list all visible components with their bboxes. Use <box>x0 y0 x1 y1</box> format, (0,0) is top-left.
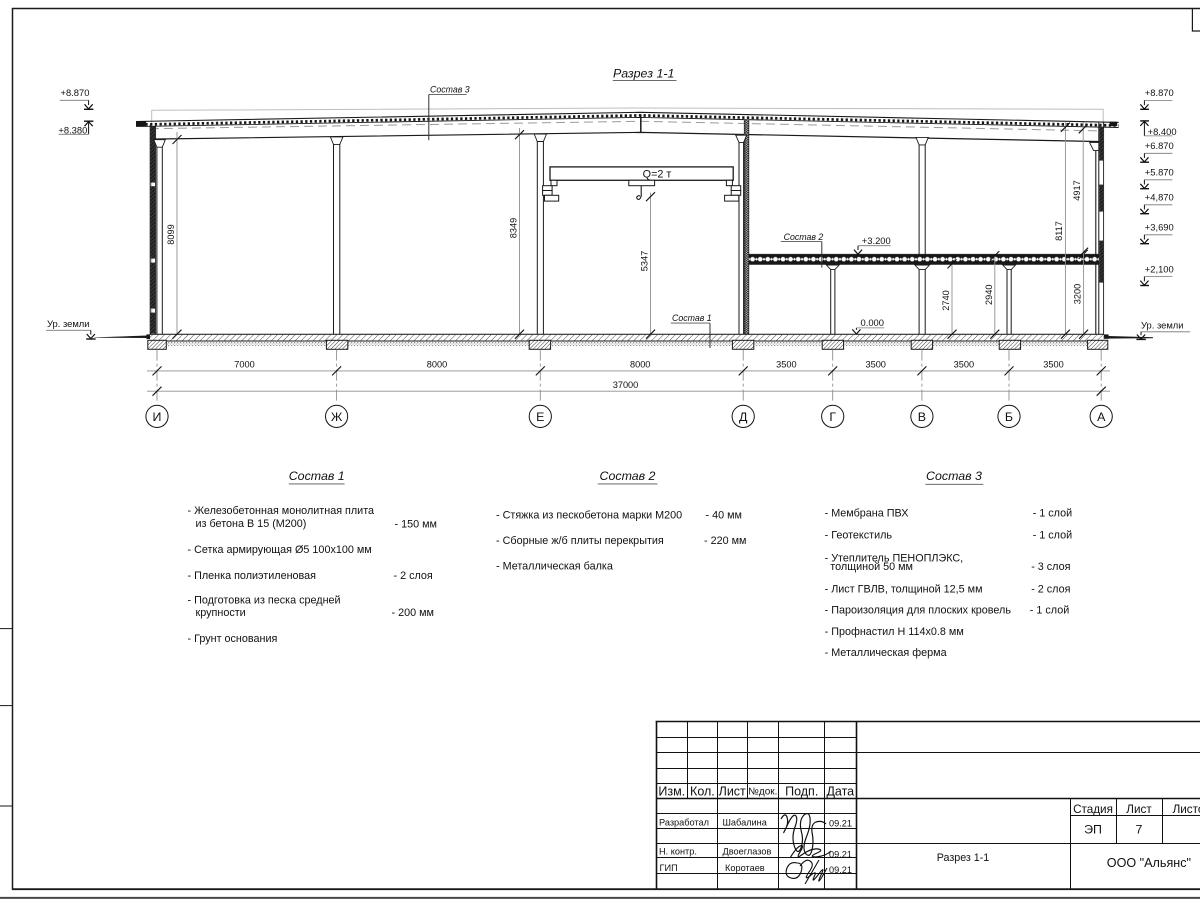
svg-text:5347: 5347 <box>640 251 650 271</box>
svg-text:Состав 3: Состав 3 <box>926 469 982 483</box>
svg-text:- 220 мм: - 220 мм <box>704 535 746 547</box>
svg-text:Б: Б <box>1005 410 1013 424</box>
svg-text:Н. контр.: Н. контр. <box>659 847 697 857</box>
svg-text:- 2 слоя: - 2 слоя <box>394 570 433 582</box>
svg-text:- Мембрана ПВХ: - Мембрана ПВХ <box>825 508 909 520</box>
svg-text:+8.870: +8.870 <box>61 87 90 98</box>
svg-text:+8.400: +8.400 <box>1148 126 1177 137</box>
svg-text:Кол.: Кол. <box>690 784 715 798</box>
svg-text:2940: 2940 <box>984 284 994 304</box>
svg-text:Дата: Дата <box>826 784 854 798</box>
svg-text:Состав 1: Состав 1 <box>672 313 712 323</box>
svg-text:Состав 2: Состав 2 <box>784 232 824 242</box>
svg-text:Двоеглазов: Двоеглазов <box>723 847 772 857</box>
svg-text:8117: 8117 <box>1054 221 1064 241</box>
svg-text:Разрез 1-1: Разрез 1-1 <box>937 852 990 864</box>
svg-text:Листов: Листов <box>1173 803 1200 816</box>
svg-text:+8.870: +8.870 <box>1145 87 1174 98</box>
svg-text:3500: 3500 <box>865 359 885 369</box>
svg-text:8349: 8349 <box>509 218 519 238</box>
svg-text:И: И <box>153 410 162 424</box>
svg-text:Е: Е <box>536 410 544 424</box>
svg-text:Коротаев: Коротаев <box>725 863 765 873</box>
svg-text:- 150 мм: - 150 мм <box>395 519 437 531</box>
svg-text:Стадия: Стадия <box>1073 803 1113 816</box>
svg-text:Разработал: Разработал <box>659 818 709 828</box>
svg-text:Состав 3: Состав 3 <box>430 85 470 95</box>
svg-text:Ур. земли: Ур. земли <box>47 318 90 329</box>
svg-text:Q=2 т: Q=2 т <box>643 169 672 181</box>
svg-text:3500: 3500 <box>776 359 796 369</box>
svg-text:- 3 слоя: - 3 слоя <box>1031 561 1070 573</box>
svg-text:2740: 2740 <box>941 290 951 310</box>
svg-text:Лист: Лист <box>1126 803 1152 816</box>
svg-text:3500: 3500 <box>954 359 974 369</box>
svg-text:В: В <box>918 410 926 424</box>
svg-text:+3,690: +3,690 <box>1145 222 1174 233</box>
svg-text:ГИП: ГИП <box>660 863 678 873</box>
svg-text:3200: 3200 <box>1073 284 1083 304</box>
svg-text:8099: 8099 <box>166 224 176 244</box>
svg-text:- Грунт основания: - Грунт основания <box>188 633 278 645</box>
svg-text:- Лист ГВЛВ, толщиной 12,5 мм: - Лист ГВЛВ, толщиной 12,5 мм <box>825 583 983 595</box>
svg-text:- Железобетонная монолитная п: - Железобетонная монолитная плита <box>188 505 375 517</box>
svg-text:+4,870: +4,870 <box>1145 192 1174 203</box>
svg-text:09.21: 09.21 <box>829 819 852 829</box>
svg-text:+3.200: +3.200 <box>862 235 891 246</box>
svg-text:- Металлическая ферма: - Металлическая ферма <box>825 647 947 659</box>
svg-text:7000: 7000 <box>234 359 254 369</box>
svg-text:37000: 37000 <box>613 380 639 390</box>
svg-text:09.21: 09.21 <box>829 850 852 860</box>
svg-text:- Профнастил Н 114х0.8 мм: - Профнастил Н 114х0.8 мм <box>825 626 964 638</box>
svg-text:- Пароизоляция для плоских кро: - Пароизоляция для плоских кровель <box>825 604 1012 616</box>
svg-text:из бетона В 15 (М200): из бетона В 15 (М200) <box>196 518 307 530</box>
svg-text:Состав 2: Состав 2 <box>600 469 656 483</box>
svg-text:- Геотекстиль: - Геотекстиль <box>825 529 893 541</box>
svg-text:Изм.: Изм. <box>658 784 685 798</box>
svg-text:№док.: №док. <box>748 786 777 797</box>
svg-text:- 1 слой: - 1 слой <box>1033 508 1072 520</box>
svg-text:+8.380: +8.380 <box>58 124 87 135</box>
svg-text:3500: 3500 <box>1043 359 1063 369</box>
svg-text:Подп.: Подп. <box>785 784 818 798</box>
svg-text:Шабалина: Шабалина <box>723 818 768 828</box>
svg-text:Ур. земли: Ур. земли <box>1141 320 1184 331</box>
svg-text:+2,100: +2,100 <box>1145 264 1174 275</box>
svg-text:- 2 слоя: - 2 слоя <box>1031 583 1070 595</box>
svg-text:8000: 8000 <box>427 359 447 369</box>
svg-text:8000: 8000 <box>630 359 650 369</box>
svg-text:+5.870: +5.870 <box>1145 167 1174 178</box>
svg-text:А: А <box>1097 410 1106 424</box>
svg-text:- 40 мм: - 40 мм <box>706 510 742 522</box>
svg-text:толщиной 50 мм: толщиной 50 мм <box>830 561 913 573</box>
svg-text:4917: 4917 <box>1072 180 1082 200</box>
svg-text:- Стяжка из пескобетона марки: - Стяжка из пескобетона марки М200 <box>496 510 682 522</box>
svg-text:- Металлическая балка: - Металлическая балка <box>496 561 613 573</box>
svg-text:ЭП: ЭП <box>1084 822 1102 836</box>
svg-text:- 200 мм: - 200 мм <box>392 607 434 619</box>
svg-text:7: 7 <box>1136 822 1143 836</box>
svg-text:Лист: Лист <box>719 784 746 798</box>
svg-text:+6.870: +6.870 <box>1145 140 1174 151</box>
svg-text:0.000: 0.000 <box>861 317 884 328</box>
svg-text:Д: Д <box>739 410 748 424</box>
svg-text:Г: Г <box>829 410 836 424</box>
svg-text:крупности: крупности <box>196 607 246 619</box>
svg-text:Ж: Ж <box>331 410 343 424</box>
svg-text:- 1 слой: - 1 слой <box>1030 604 1069 616</box>
svg-text:- 1 слой: - 1 слой <box>1033 529 1072 541</box>
svg-text:- Подготовка из песка средней: - Подготовка из песка средней <box>188 595 341 607</box>
svg-text:Разрез 1-1: Разрез 1-1 <box>613 66 674 80</box>
svg-text:Состав 1: Состав 1 <box>289 469 345 483</box>
svg-text:- Пленка полиэтиленовая: - Пленка полиэтиленовая <box>188 570 317 582</box>
svg-text:09.21: 09.21 <box>829 865 852 875</box>
svg-text:- Сборные ж/б плиты перекрытия: - Сборные ж/б плиты перекрытия <box>496 535 664 547</box>
svg-text:- Сетка армирующая Ø5 100х100: - Сетка армирующая Ø5 100х100 мм <box>188 544 372 556</box>
svg-text:ООО "Альянс": ООО "Альянс" <box>1107 856 1191 870</box>
